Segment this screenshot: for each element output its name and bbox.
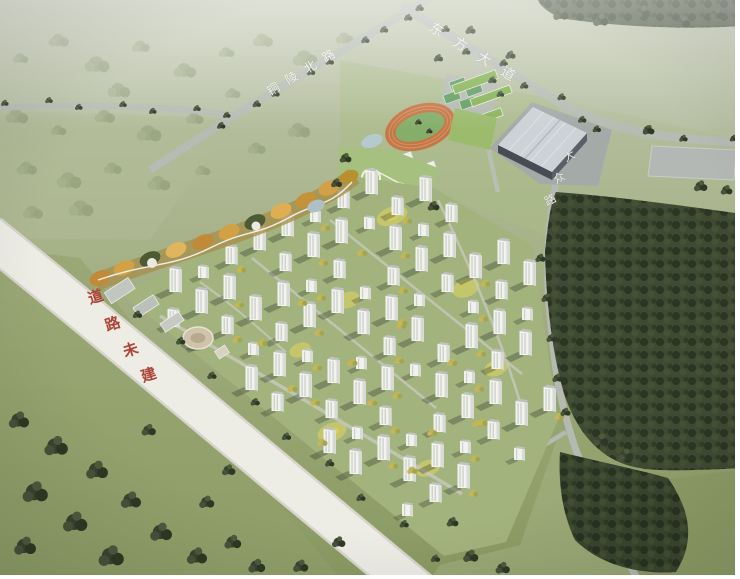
aerial-masterplan-rendering: 铜陵北路 东方大道 大 众 路 道 路 未 建 bbox=[0, 0, 740, 579]
vignette-overlay bbox=[0, 0, 740, 579]
bottom-margin bbox=[0, 575, 740, 579]
right-margin bbox=[735, 0, 740, 579]
